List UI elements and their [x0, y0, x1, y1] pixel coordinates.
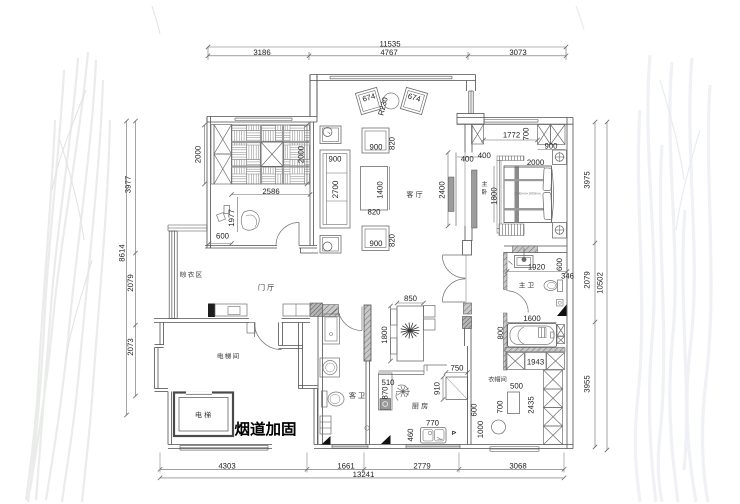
svg-text:13241: 13241	[353, 470, 375, 479]
svg-text:820: 820	[388, 136, 397, 150]
svg-text:电 梯: 电 梯	[195, 411, 211, 420]
svg-text:600: 600	[470, 403, 479, 417]
svg-text:3068: 3068	[509, 462, 526, 471]
svg-text:2779: 2779	[413, 462, 430, 471]
svg-text:2000: 2000	[297, 145, 306, 163]
svg-text:1920: 1920	[528, 263, 546, 272]
svg-text:3186: 3186	[253, 48, 270, 57]
svg-text:3977: 3977	[124, 176, 133, 193]
svg-text:8614: 8614	[118, 244, 127, 262]
svg-text:700: 700	[522, 127, 531, 141]
svg-text:1400: 1400	[376, 181, 385, 199]
svg-text:3975: 3975	[583, 171, 592, 189]
svg-text:2400: 2400	[438, 181, 447, 199]
svg-text:2073: 2073	[126, 338, 135, 355]
svg-text:1600: 1600	[523, 314, 541, 323]
svg-text:510: 510	[381, 378, 395, 387]
svg-text:750: 750	[450, 364, 464, 373]
svg-text:770: 770	[426, 419, 440, 428]
svg-text:900: 900	[369, 239, 383, 248]
svg-text:800: 800	[496, 326, 505, 340]
svg-text:1977: 1977	[227, 209, 236, 226]
svg-text:烟道加固: 烟道加固	[235, 421, 297, 439]
svg-text:900: 900	[369, 143, 383, 152]
svg-text:4303: 4303	[218, 462, 235, 471]
svg-text:2700: 2700	[331, 180, 340, 198]
svg-text:4767: 4767	[380, 48, 397, 57]
svg-text:2079: 2079	[126, 274, 135, 291]
svg-text:346: 346	[561, 272, 574, 281]
svg-text:门 厅: 门 厅	[258, 283, 274, 292]
svg-text:600: 600	[555, 257, 564, 271]
svg-text:1000: 1000	[476, 420, 485, 438]
svg-text:卧: 卧	[481, 189, 487, 196]
svg-text:900: 900	[328, 155, 342, 164]
svg-text:870: 870	[380, 386, 389, 400]
svg-text:2000: 2000	[527, 158, 545, 167]
svg-text:1943: 1943	[527, 358, 544, 367]
svg-text:10502: 10502	[596, 272, 605, 294]
svg-text:厨 房: 厨 房	[412, 402, 428, 411]
svg-text:2079: 2079	[583, 271, 592, 288]
svg-text:电梯间: 电梯间	[217, 353, 240, 361]
svg-text:460: 460	[406, 428, 415, 442]
svg-text:400: 400	[461, 155, 475, 164]
svg-text:11535: 11535	[379, 39, 401, 48]
svg-text:600: 600	[216, 232, 230, 241]
svg-text:3073: 3073	[509, 48, 526, 57]
svg-text:820: 820	[388, 233, 397, 247]
svg-text:衣帽间: 衣帽间	[488, 376, 507, 384]
svg-text:500: 500	[510, 382, 524, 391]
svg-text:3955: 3955	[583, 375, 592, 393]
svg-text:1800: 1800	[490, 187, 499, 205]
svg-text:820: 820	[367, 208, 381, 217]
svg-text:910: 910	[433, 381, 442, 395]
svg-text:900: 900	[544, 142, 558, 151]
svg-text:2000: 2000	[194, 145, 203, 163]
svg-text:晾衣区: 晾衣区	[180, 271, 203, 279]
svg-text:1772: 1772	[503, 131, 520, 140]
svg-text:400: 400	[478, 151, 492, 160]
svg-text:1800: 1800	[380, 326, 389, 344]
svg-text:2000mm×1800mm: 2000mm×1800mm	[514, 192, 541, 196]
svg-text:主 卫: 主 卫	[519, 282, 535, 290]
svg-text:700: 700	[496, 400, 505, 414]
svg-text:客 卫: 客 卫	[349, 391, 365, 400]
svg-text:2435: 2435	[527, 396, 536, 414]
svg-text:850: 850	[404, 294, 418, 303]
svg-text:主: 主	[481, 180, 487, 188]
svg-text:客 厅: 客 厅	[406, 190, 422, 199]
svg-text:2586: 2586	[262, 187, 279, 196]
